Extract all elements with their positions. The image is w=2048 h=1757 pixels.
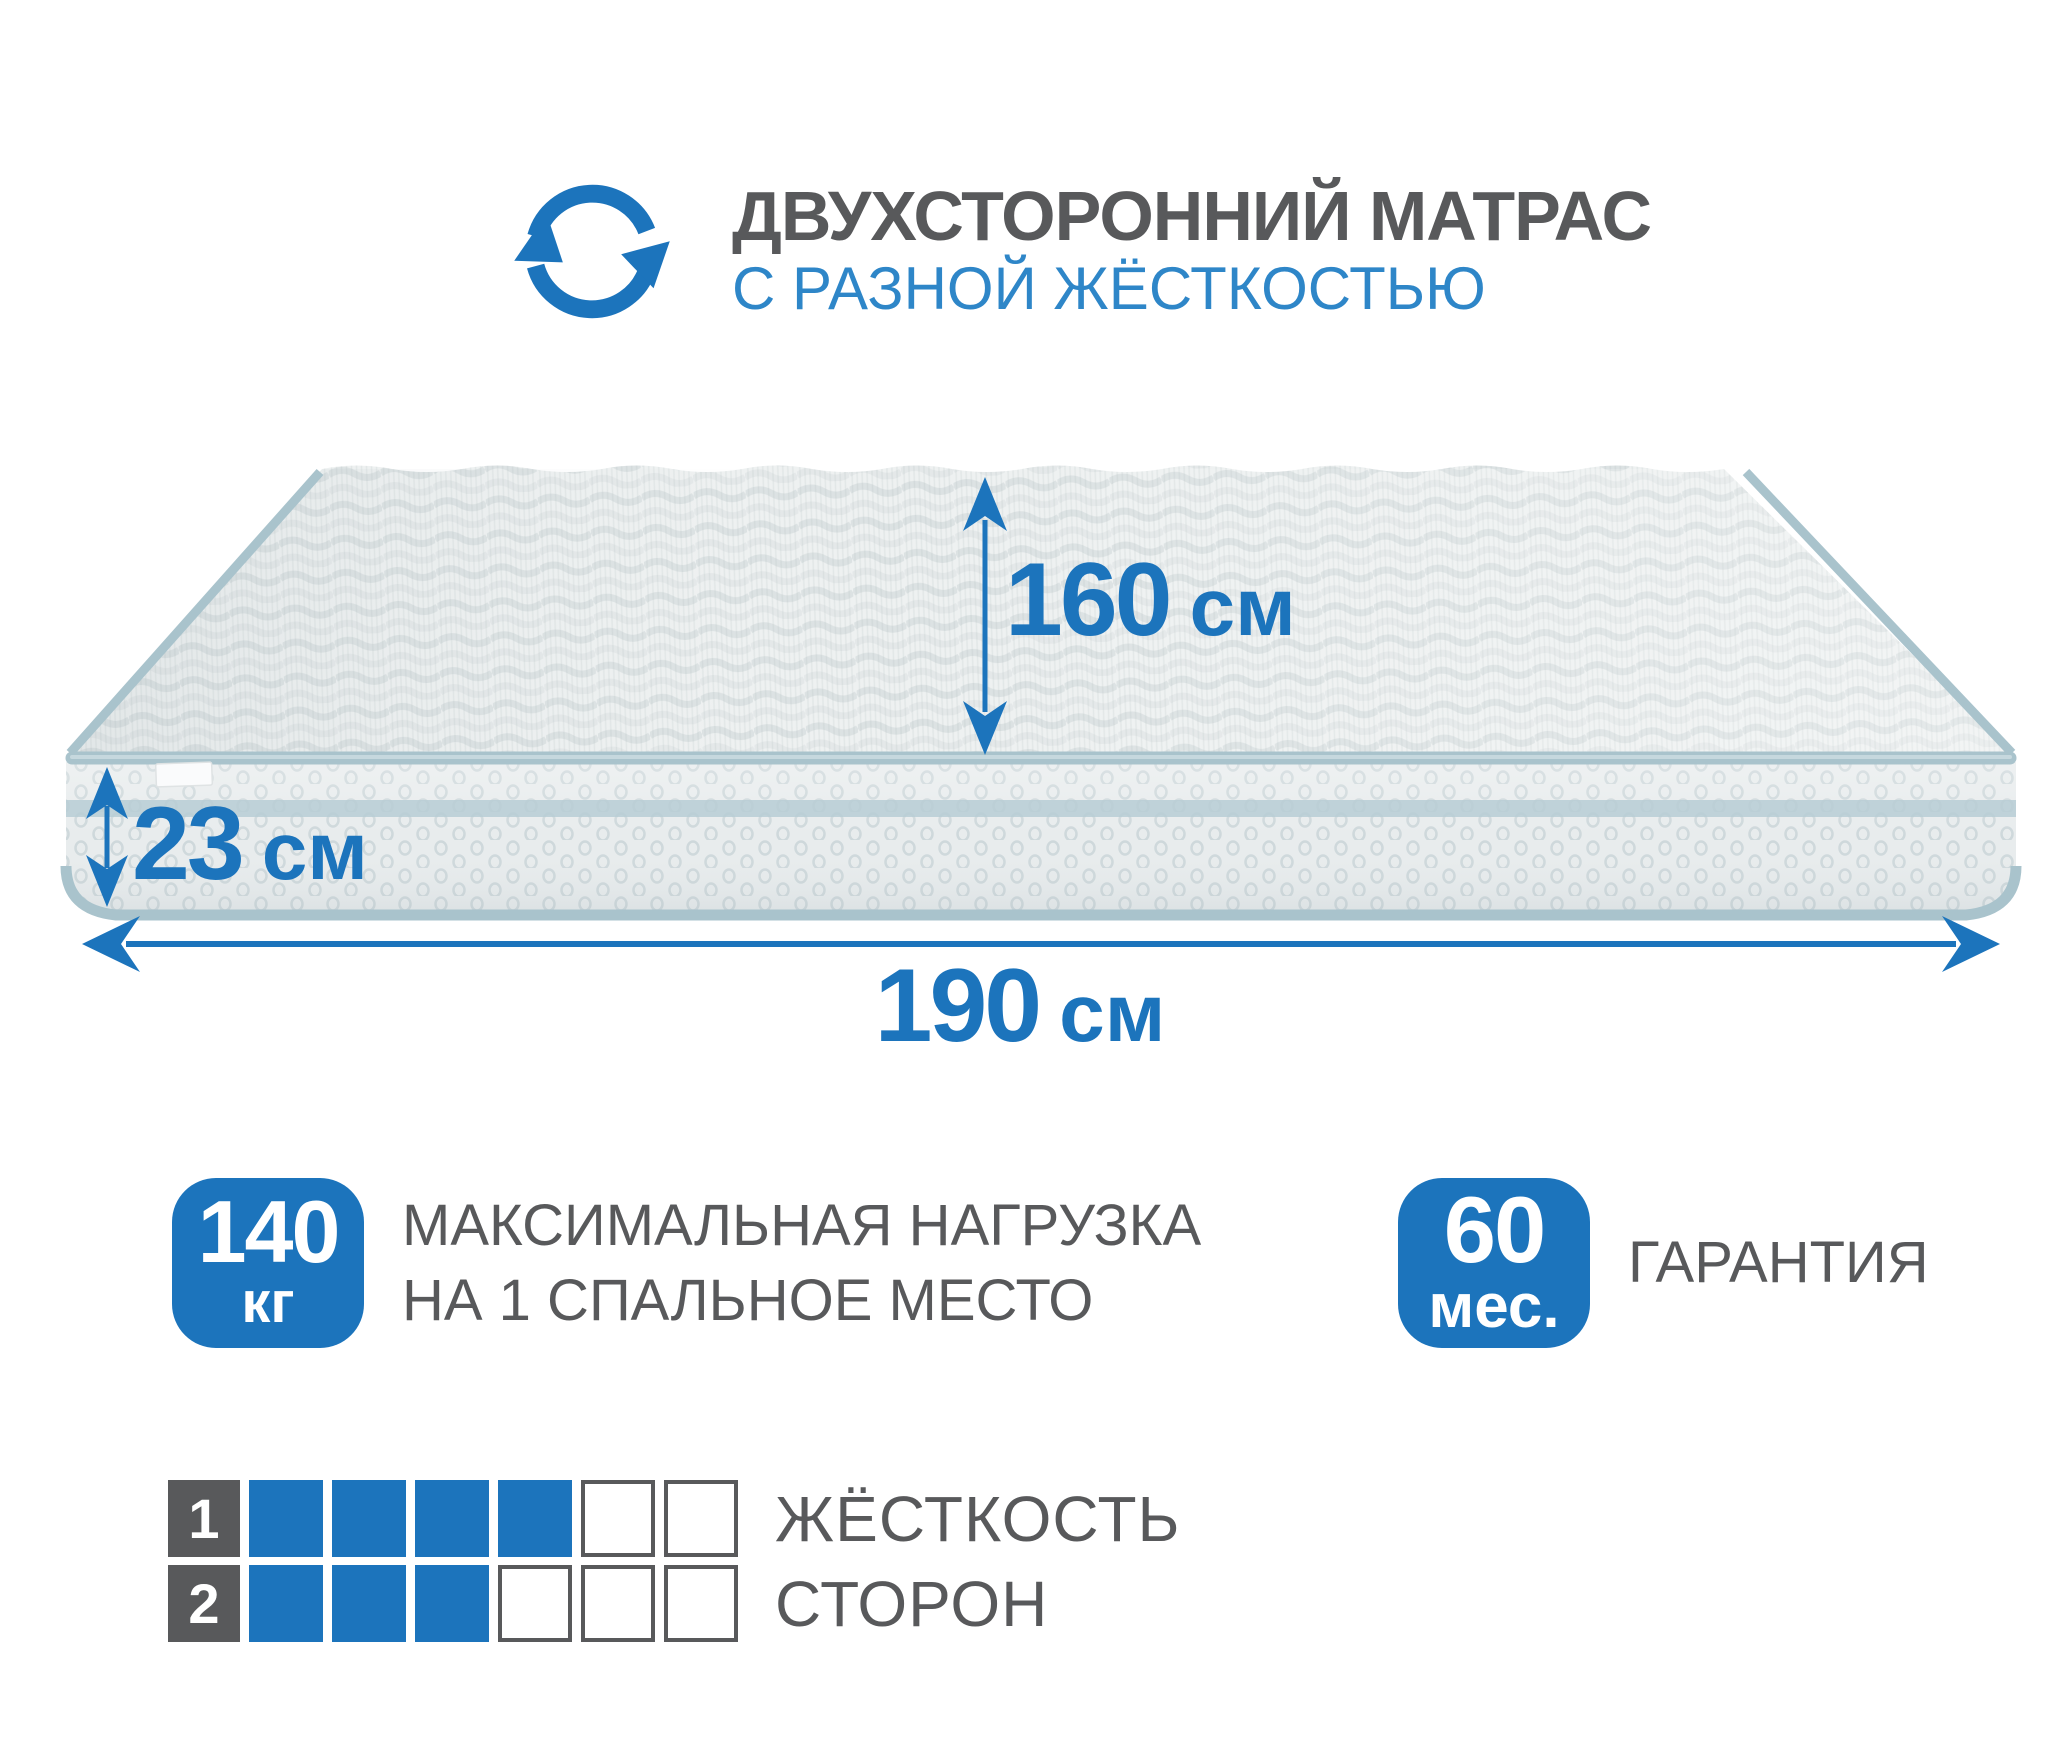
firmness-cell-empty [664, 1480, 738, 1557]
warranty-label: ГАРАНТИЯ [1628, 1225, 1929, 1300]
length-value: 190 [875, 948, 1040, 1064]
firmness-caption-line2: СТОРОН [775, 1565, 1181, 1642]
width-arrow [963, 477, 1007, 755]
firmness-side-number: 2 [168, 1565, 240, 1642]
rotate-arrows-icon [506, 170, 678, 332]
firmness-caption-line1: ЖЁСТКОСТЬ [775, 1480, 1181, 1557]
firmness-cell-filled [415, 1480, 489, 1557]
firmness-cell-empty [581, 1565, 655, 1642]
page-subtitle: С РАЗНОЙ ЖЁСТКОСТЬЮ [732, 254, 1832, 323]
firmness-cell-empty [664, 1565, 738, 1642]
length-dimension-label: 190см [875, 954, 1166, 1058]
firmness-cell-filled [498, 1480, 572, 1557]
firmness-caption: ЖЁСТКОСТЬ СТОРОН [775, 1480, 1181, 1642]
firmness-row: 2 [168, 1565, 738, 1642]
width-dimension-label: 160см [1005, 548, 1296, 652]
page-title: ДВУХСТОРОННИЙ МАТРАС [732, 176, 1832, 256]
firmness-side-number: 1 [168, 1480, 240, 1557]
width-unit: см [1190, 562, 1296, 653]
left-edge-piping [70, 472, 320, 753]
length-unit: см [1059, 968, 1165, 1059]
height-dimension-label: 23см [132, 792, 368, 896]
firmness-cell-filled [415, 1565, 489, 1642]
firmness-cell-empty [498, 1565, 572, 1642]
firmness-cell-filled [332, 1480, 406, 1557]
max-load-unit: кг [241, 1273, 294, 1334]
firmness-scale: 12 [168, 1480, 738, 1642]
max-load-label: МАКСИМАЛЬНАЯ НАГРУЗКА НА 1 СПАЛЬНОЕ МЕСТ… [402, 1188, 1201, 1339]
height-value: 23 [132, 786, 242, 902]
firmness-rows: 12 [168, 1480, 738, 1642]
firmness-cell-filled [249, 1480, 323, 1557]
warranty-badge: 60 мес. [1398, 1178, 1590, 1348]
max-load-value: 140 [198, 1192, 339, 1273]
warranty-value: 60 [1444, 1187, 1545, 1273]
width-value: 160 [1005, 542, 1170, 658]
firmness-cell-filled [249, 1565, 323, 1642]
right-edge-piping [1746, 472, 2012, 753]
max-load-badge: 140 кг [172, 1178, 364, 1348]
mattress-infographic: ДВУХСТОРОННИЙ МАТРАС С РАЗНОЙ ЖЁСТКОСТЬЮ [0, 0, 2048, 1757]
firmness-row: 1 [168, 1480, 738, 1557]
warranty-feature: 60 мес. ГАРАНТИЯ [1398, 1178, 1929, 1348]
height-arrow [86, 767, 128, 907]
firmness-cell-empty [581, 1480, 655, 1557]
mattress-tag [156, 762, 213, 787]
max-load-feature: 140 кг МАКСИМАЛЬНАЯ НАГРУЗКА НА 1 СПАЛЬН… [172, 1178, 1201, 1348]
height-unit: см [262, 806, 368, 897]
warranty-unit: мес. [1428, 1274, 1559, 1339]
firmness-cell-filled [332, 1565, 406, 1642]
